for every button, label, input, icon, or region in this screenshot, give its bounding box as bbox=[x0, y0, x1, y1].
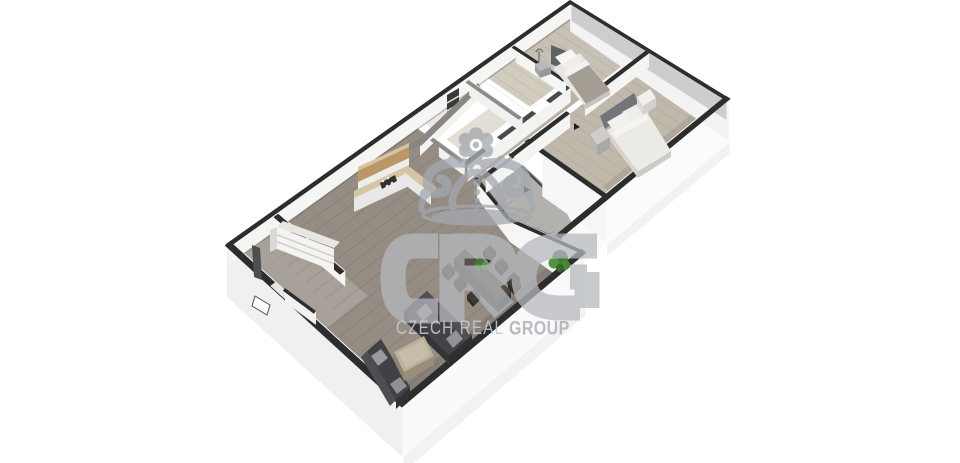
svg-text:GROUP: GROUP bbox=[509, 317, 570, 339]
svg-text:CZECH REAL: CZECH REAL bbox=[396, 316, 504, 338]
